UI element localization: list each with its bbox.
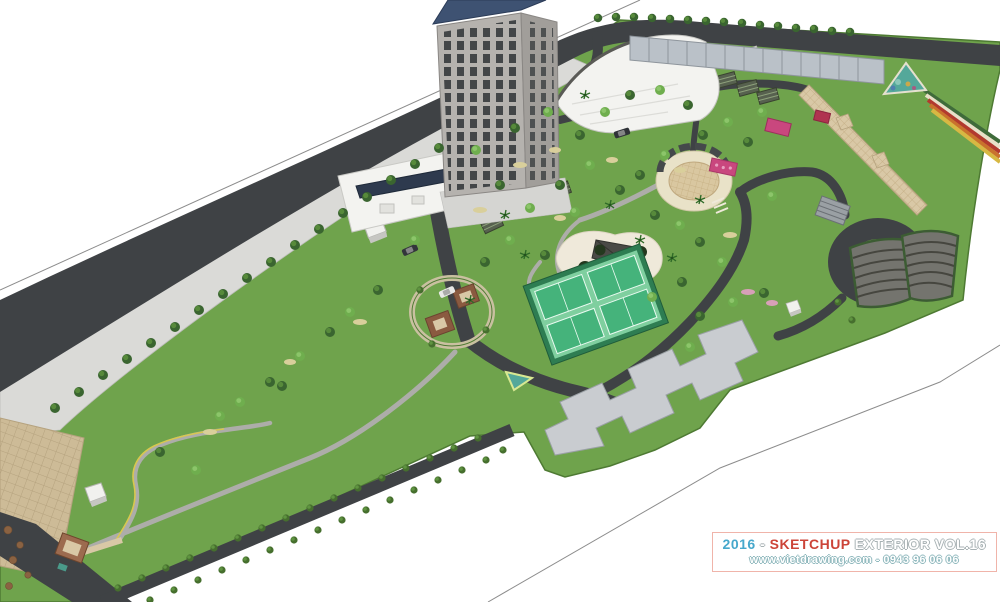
tower-windows-side xyxy=(524,20,555,184)
watermark-title-rest: EXTERIOR VOL.16 xyxy=(850,536,986,552)
watermark-title: 2016 - SKETCHUP EXTERIOR VOL.16 xyxy=(723,535,986,553)
watermark-website: www.vietdrawing.com - 0943 96 06 06 xyxy=(723,553,986,567)
tower xyxy=(433,0,559,197)
sketchup-render-stage: 2016 - SKETCHUP EXTERIOR VOL.16 www.viet… xyxy=(0,0,1000,602)
watermark-brand: SKETCHUP xyxy=(770,536,851,552)
watermark: 2016 - SKETCHUP EXTERIOR VOL.16 www.viet… xyxy=(712,532,997,572)
watermark-year: 2016 xyxy=(723,536,756,552)
site-plan-rendering xyxy=(0,0,1000,602)
tower-windows-front xyxy=(442,20,521,191)
